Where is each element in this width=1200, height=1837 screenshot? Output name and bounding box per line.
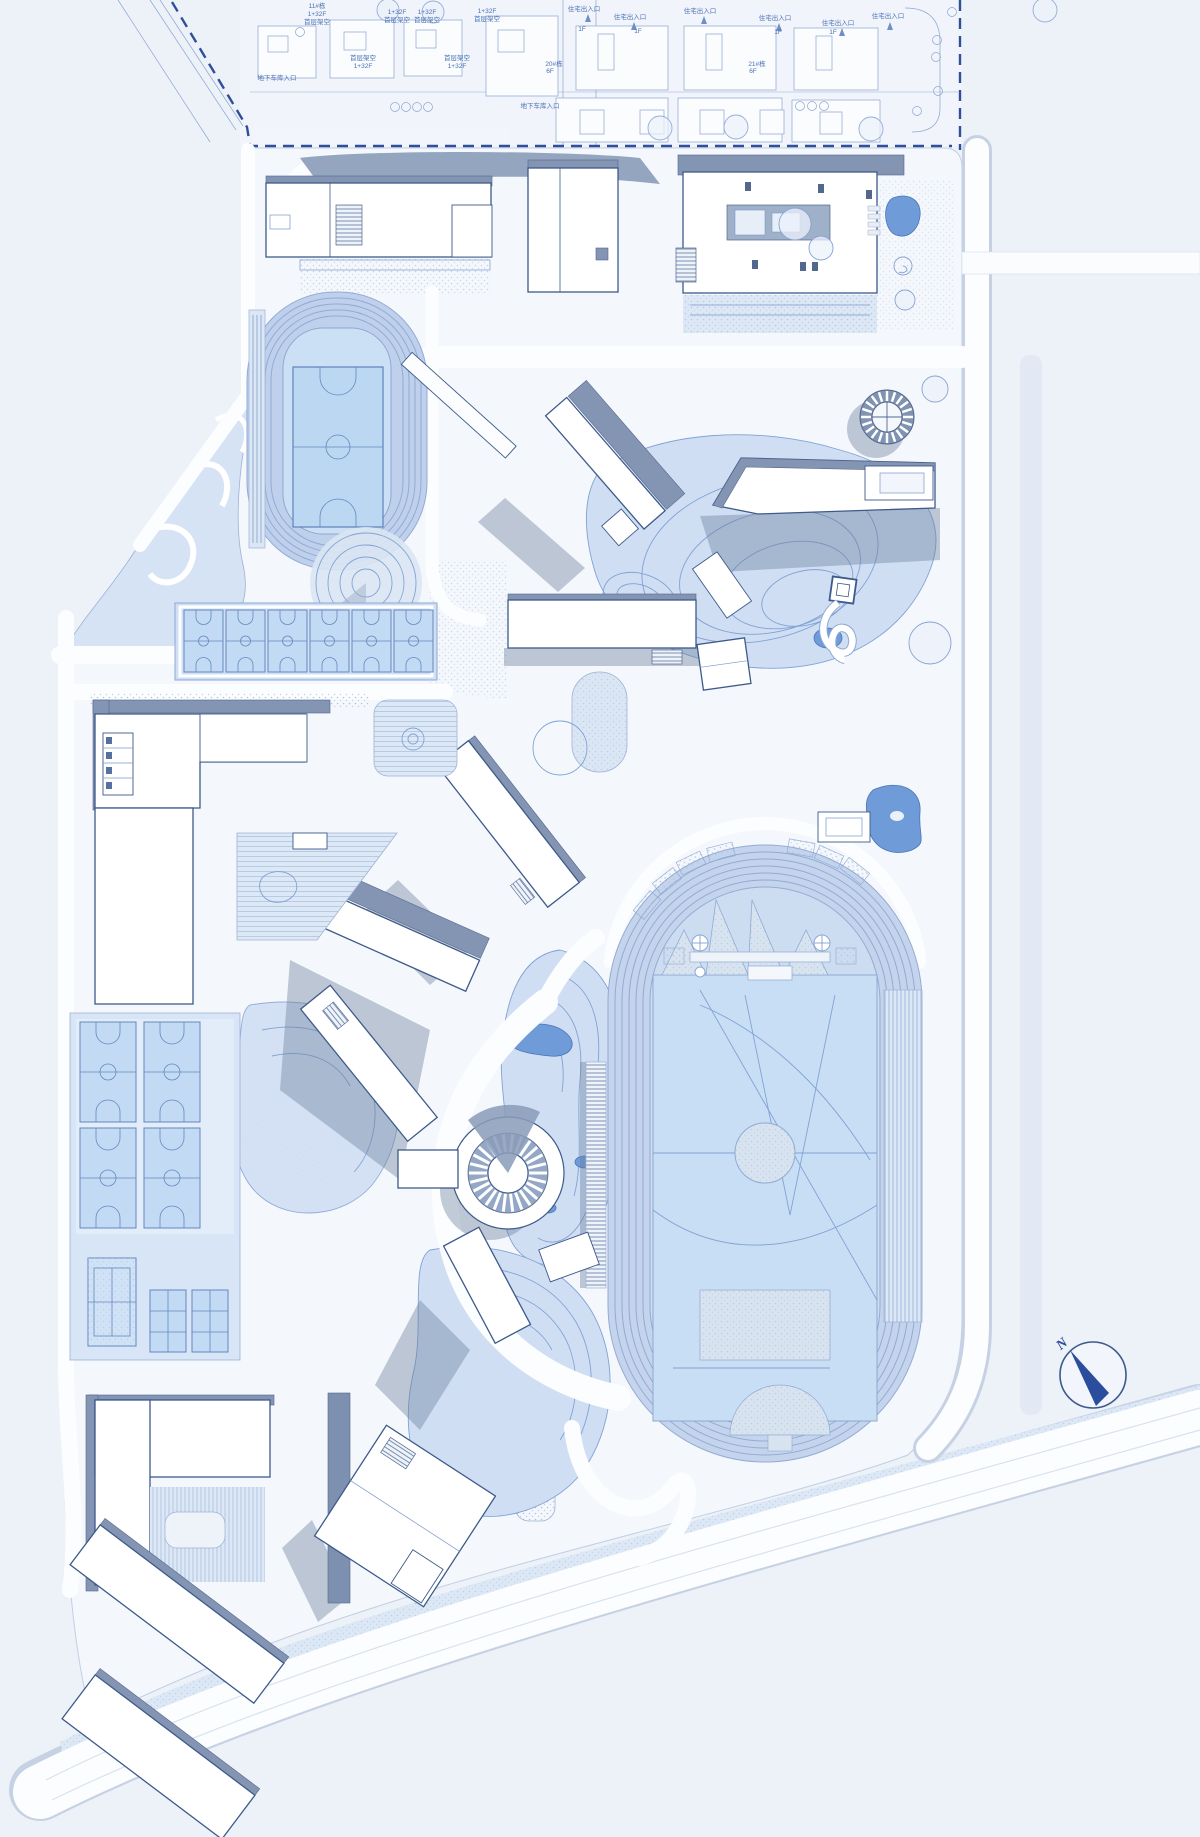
residential-label: 住宅出入口	[759, 13, 792, 22]
basketball-court	[310, 610, 349, 672]
residential-label: 首层架空	[414, 15, 441, 24]
basketball-court	[394, 610, 433, 672]
north-track	[247, 292, 427, 570]
southwest-courts	[70, 1013, 240, 1360]
residential-label: 1F	[634, 28, 642, 35]
amphitheater-west-arm	[398, 1150, 458, 1188]
basketball-court	[184, 610, 223, 672]
residential-label: 11#栋	[309, 1, 326, 10]
residential-label: 1+32F	[308, 11, 327, 18]
east-verge	[1020, 355, 1042, 1415]
basketball-court	[80, 1128, 136, 1228]
residential-label: 1+32F	[478, 8, 497, 15]
deck-terrace	[374, 700, 457, 776]
residential-label: 1F	[829, 29, 837, 36]
residential-label: 1+32F	[448, 63, 467, 70]
building-topcenter	[528, 160, 618, 292]
sun-deck	[860, 390, 914, 444]
residential-label: 住宅出入口	[568, 4, 601, 13]
annex-grid	[103, 733, 133, 795]
residential-label: 1+32F	[354, 63, 373, 70]
residential-label: 21#栋	[748, 59, 766, 68]
building-playground-north	[713, 458, 935, 514]
north-track-court	[293, 367, 383, 527]
stair-icon	[336, 205, 362, 245]
basketball-court	[144, 1022, 200, 1122]
stair-icon	[652, 650, 682, 664]
basketball-court	[226, 610, 265, 672]
residential-label: 地下车库入口	[258, 73, 297, 82]
residential-label: 住宅出入口	[822, 18, 855, 27]
residential-label: 首层架空	[350, 53, 377, 62]
basketball-court	[80, 1022, 136, 1122]
basketball-court	[268, 610, 307, 672]
residential-label: 1F	[774, 29, 782, 36]
residential-label: 首层架空	[444, 53, 471, 62]
residential-label: 1+32F	[388, 9, 407, 16]
basketball-strip	[175, 603, 437, 680]
residential-label: 6F	[546, 68, 554, 75]
residential-label: 住宅出入口	[684, 6, 717, 15]
site-plan-canvas: N 11#栋1+32F首层架空1+32F首层架空1+32F首层架空1+32F首层…	[0, 0, 1200, 1837]
residential-label: 1+32F	[418, 9, 437, 16]
residential-label: 地下车库入口	[521, 101, 560, 110]
residential-label: 6F	[749, 68, 757, 75]
residential-label: 首层架空	[474, 14, 501, 23]
residential-label: 20#栋	[545, 59, 563, 68]
basketball-court	[352, 610, 391, 672]
east-gate-road	[962, 252, 1200, 274]
tennis-court	[88, 1258, 136, 1346]
residential-label: 住宅出入口	[614, 12, 647, 21]
basketball-court	[144, 1128, 200, 1228]
residential-label: 首层架空	[384, 15, 411, 24]
residential-label: 首层架空	[304, 17, 331, 26]
residential-label: 住宅出入口	[872, 11, 905, 20]
residential-label: 1F	[578, 26, 586, 33]
stair-icon	[676, 248, 696, 282]
residential-strip	[118, 0, 1057, 146]
